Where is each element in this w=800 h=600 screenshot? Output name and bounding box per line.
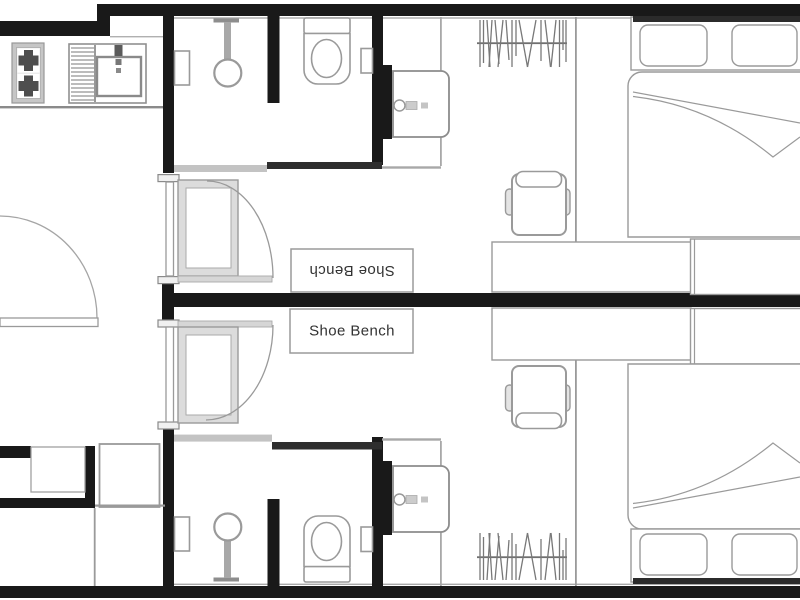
svg-text:Shoe Bench: Shoe Bench — [309, 262, 395, 279]
svg-text:Shoe Bench: Shoe Bench — [309, 323, 395, 340]
